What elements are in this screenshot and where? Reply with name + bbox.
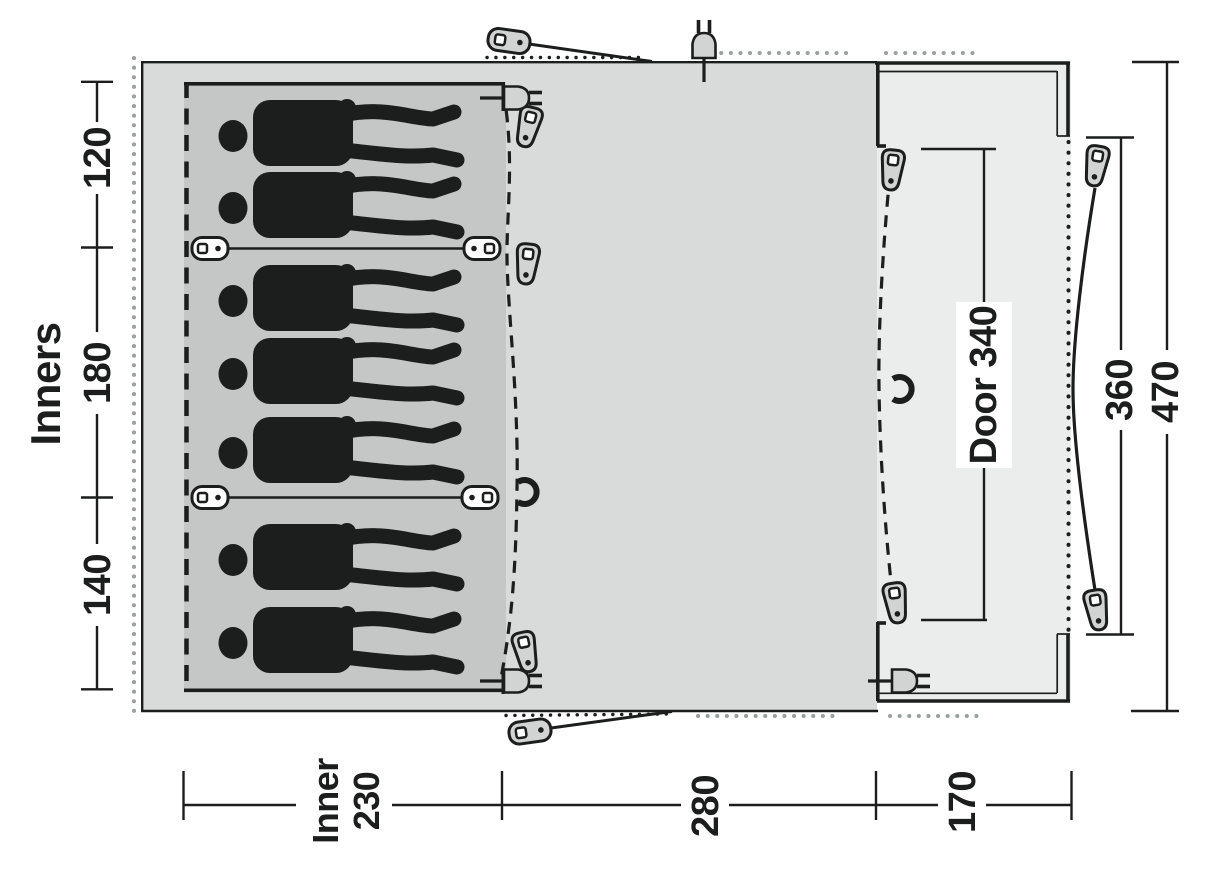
guyline-toggle-icon — [487, 27, 532, 55]
label-170: 170 — [942, 771, 984, 833]
label-230: 230 — [346, 772, 387, 831]
inner-tent — [184, 82, 544, 692]
label-120: 120 — [77, 127, 119, 189]
label-180: 180 — [77, 342, 119, 404]
toggle-clip-icon — [192, 238, 228, 260]
label-470: 470 — [1145, 361, 1187, 423]
toggle-clip-icon — [464, 238, 500, 260]
zipper-pull-icon — [1083, 589, 1111, 632]
toggle-clip-icon — [462, 487, 498, 509]
label-140: 140 — [77, 554, 119, 616]
front-door-flap-line — [1073, 188, 1095, 590]
dimension-bottom: Inner 230 280 170 — [183, 758, 1072, 844]
label-door-340: Door 340 — [963, 306, 1005, 465]
zipper-pull-icon — [1082, 145, 1110, 188]
tent-floorplan-diagram: 120 180 140 Inners Inner 230 280 170 Doo… — [0, 0, 1230, 872]
label-inner: Inner — [305, 758, 346, 844]
dimension-left: 120 180 140 Inners — [22, 81, 119, 690]
label-280: 280 — [685, 775, 727, 837]
dimension-360: 360 — [1086, 137, 1142, 635]
top-guyline — [529, 44, 652, 62]
label-360: 360 — [1099, 359, 1141, 421]
toggle-clip-icon — [192, 487, 228, 509]
label-inners: Inners — [22, 322, 69, 445]
guyline-toggle-icon — [508, 718, 553, 746]
